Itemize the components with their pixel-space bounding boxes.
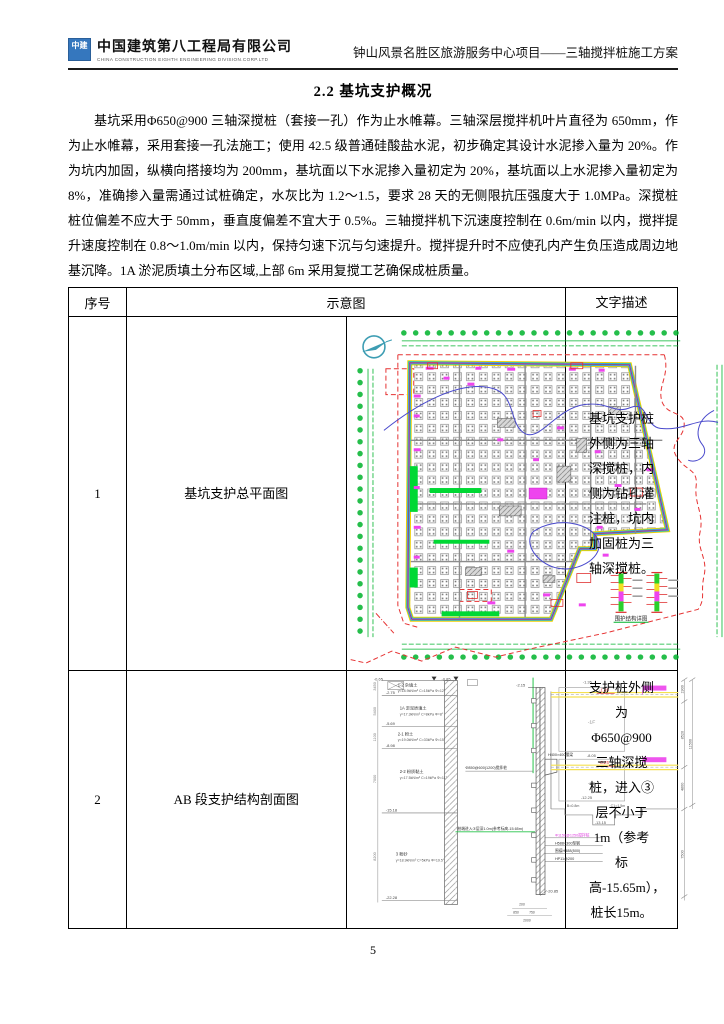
page-number: 5 bbox=[68, 943, 678, 958]
overview-table: 序号 示意图 文字描述 1 基坑支护总平面图 bbox=[68, 287, 678, 929]
ground-surface-marks: -0.65 -0.85 bbox=[373, 676, 476, 689]
elevation-label: -5.69 bbox=[385, 720, 395, 725]
header-cell-description: 文字描述 bbox=[566, 288, 678, 317]
layer-thickness: 7000 bbox=[372, 774, 376, 782]
pile-callout: Φ1150@1250搅拌桩 bbox=[554, 832, 589, 837]
elevation-label: -2.75 bbox=[385, 690, 395, 695]
company-logo-text: 中国建筑第八工程局有限公司 CHINA CONSTRUCTION EIGHTH … bbox=[97, 36, 292, 62]
layer-thickness: 3450 bbox=[372, 682, 376, 690]
table-row: 1 基坑支护总平面图 bbox=[69, 317, 678, 671]
dim-label: 7500 bbox=[680, 850, 684, 858]
elevation-label: -15.18 bbox=[385, 807, 397, 812]
dim-label: B=0.8m bbox=[566, 803, 578, 807]
dim-label: 750 bbox=[529, 910, 535, 914]
row1-no: 1 bbox=[69, 317, 127, 671]
soil-layer-name: 2-1 粉土 bbox=[397, 730, 412, 736]
dim-label: 2000 bbox=[523, 918, 531, 922]
table-header-row: 序号 示意图 文字描述 bbox=[69, 288, 678, 317]
row1-diagram-cell: 围护结构详图 bbox=[346, 317, 566, 671]
soil-layer-params: γ=19.0kN/m³ C=33kPa Φ=15° bbox=[397, 737, 445, 741]
soil-layer-name: 1A 淤泥质填土 bbox=[399, 704, 426, 710]
row1-label: 基坑支护总平面图 bbox=[127, 317, 347, 671]
bottom-dimensions: 200 850 750 2000 bbox=[507, 902, 552, 922]
header-cell-diagram: 示意图 bbox=[127, 288, 566, 317]
layer-thickness: 8200 bbox=[372, 852, 376, 860]
right-dimension-chain: 1900 8520 11500 4800 7500 bbox=[680, 677, 695, 900]
dim-label: 850 bbox=[513, 910, 519, 914]
floor-label: -1F bbox=[587, 719, 594, 725]
north-arrow-icon bbox=[362, 335, 392, 357]
layer-thickness: 1100 bbox=[372, 733, 376, 741]
layer-thickness: 5400 bbox=[372, 707, 376, 715]
row2-label: AB 段支护结构剖面图 bbox=[127, 671, 347, 929]
elevation-label: -2.15 bbox=[516, 682, 526, 687]
company-name-cn: 中国建筑第八工程局有限公司 bbox=[97, 36, 292, 56]
header-cell-no: 序号 bbox=[69, 288, 127, 317]
soil-layer-params: γ=17.5kN/m³ C=19kPa Φ=11° bbox=[399, 776, 447, 780]
company-logo-icon: 中建 bbox=[68, 38, 91, 61]
pile-callout: HP11@200 bbox=[554, 857, 573, 861]
row2-diagram-cell: -0.65 -0.85 bbox=[346, 671, 566, 929]
dim-label: 4800 bbox=[680, 782, 684, 790]
pile-callout: H588×300型钢 bbox=[554, 840, 579, 845]
pile-label: Φ850@600(1200)搅拌桩 bbox=[465, 765, 507, 770]
elevation-label: -20.85 bbox=[546, 888, 558, 893]
dim-label: 200 bbox=[519, 902, 525, 906]
soil-layer-name: 3 粉砂 bbox=[395, 850, 407, 856]
soil-layer-params: γ=17.3kN/m³ C=8kPa Φ=8° bbox=[399, 712, 443, 716]
section-heading: 2.2 基坑支护概况 bbox=[68, 80, 678, 101]
detail-label: 围护结构详图 bbox=[614, 614, 647, 622]
waler-label: H400×400腰梁 bbox=[547, 752, 572, 757]
row2-no: 2 bbox=[69, 671, 127, 929]
soil-layer-name: 1-2 杂填土 bbox=[397, 681, 417, 687]
company-name-en: CHINA CONSTRUCTION EIGHTH ENGINEERING DI… bbox=[97, 57, 292, 62]
soil-layer-params: γ=18.9kN/m³ C=15kPa Φ=12° bbox=[397, 689, 445, 693]
elevation-label: -22.28 bbox=[385, 894, 397, 899]
soil-layer-params: γ=18.9kN/m³ C=5kPa Φ=19.5° bbox=[395, 858, 444, 862]
document-title: 钟山风景名胜区旅游服务中心项目——三轴搅拌桩施工方案 bbox=[353, 42, 678, 62]
page-header: 中建 中国建筑第八工程局有限公司 CHINA CONSTRUCTION EIGH… bbox=[68, 36, 678, 70]
pile-callout: 围檩H488(500) bbox=[554, 848, 580, 853]
pile-toe-note: 桩端进入③层深1.0m(参考标高-15.65m) bbox=[457, 825, 523, 830]
soil-layer-name: 2-2 粉质黏土 bbox=[399, 768, 423, 774]
table-row: 2 AB 段支护结构剖面图 -0.65 -0.85 bbox=[69, 671, 678, 929]
dim-label: 8520 bbox=[680, 730, 684, 738]
company-logo: 中建 中国建筑第八工程局有限公司 CHINA CONSTRUCTION EIGH… bbox=[68, 36, 292, 62]
dim-label: 1900 bbox=[680, 685, 684, 693]
elevation-label: -8.98 bbox=[385, 742, 395, 747]
body-paragraph: 基坑采用Φ650@900 三轴深搅桩（套接一孔）作为止水帷幕。三轴深层搅拌机叶片… bbox=[68, 108, 678, 283]
dim-label: 11500 bbox=[688, 739, 692, 749]
soil-column: 3450 5400 1100 7000 8200 1-2 杂填土 γ=18.9k… bbox=[372, 680, 457, 904]
document-page: 中建 中国建筑第八工程局有限公司 CHINA CONSTRUCTION EIGH… bbox=[0, 0, 724, 1024]
